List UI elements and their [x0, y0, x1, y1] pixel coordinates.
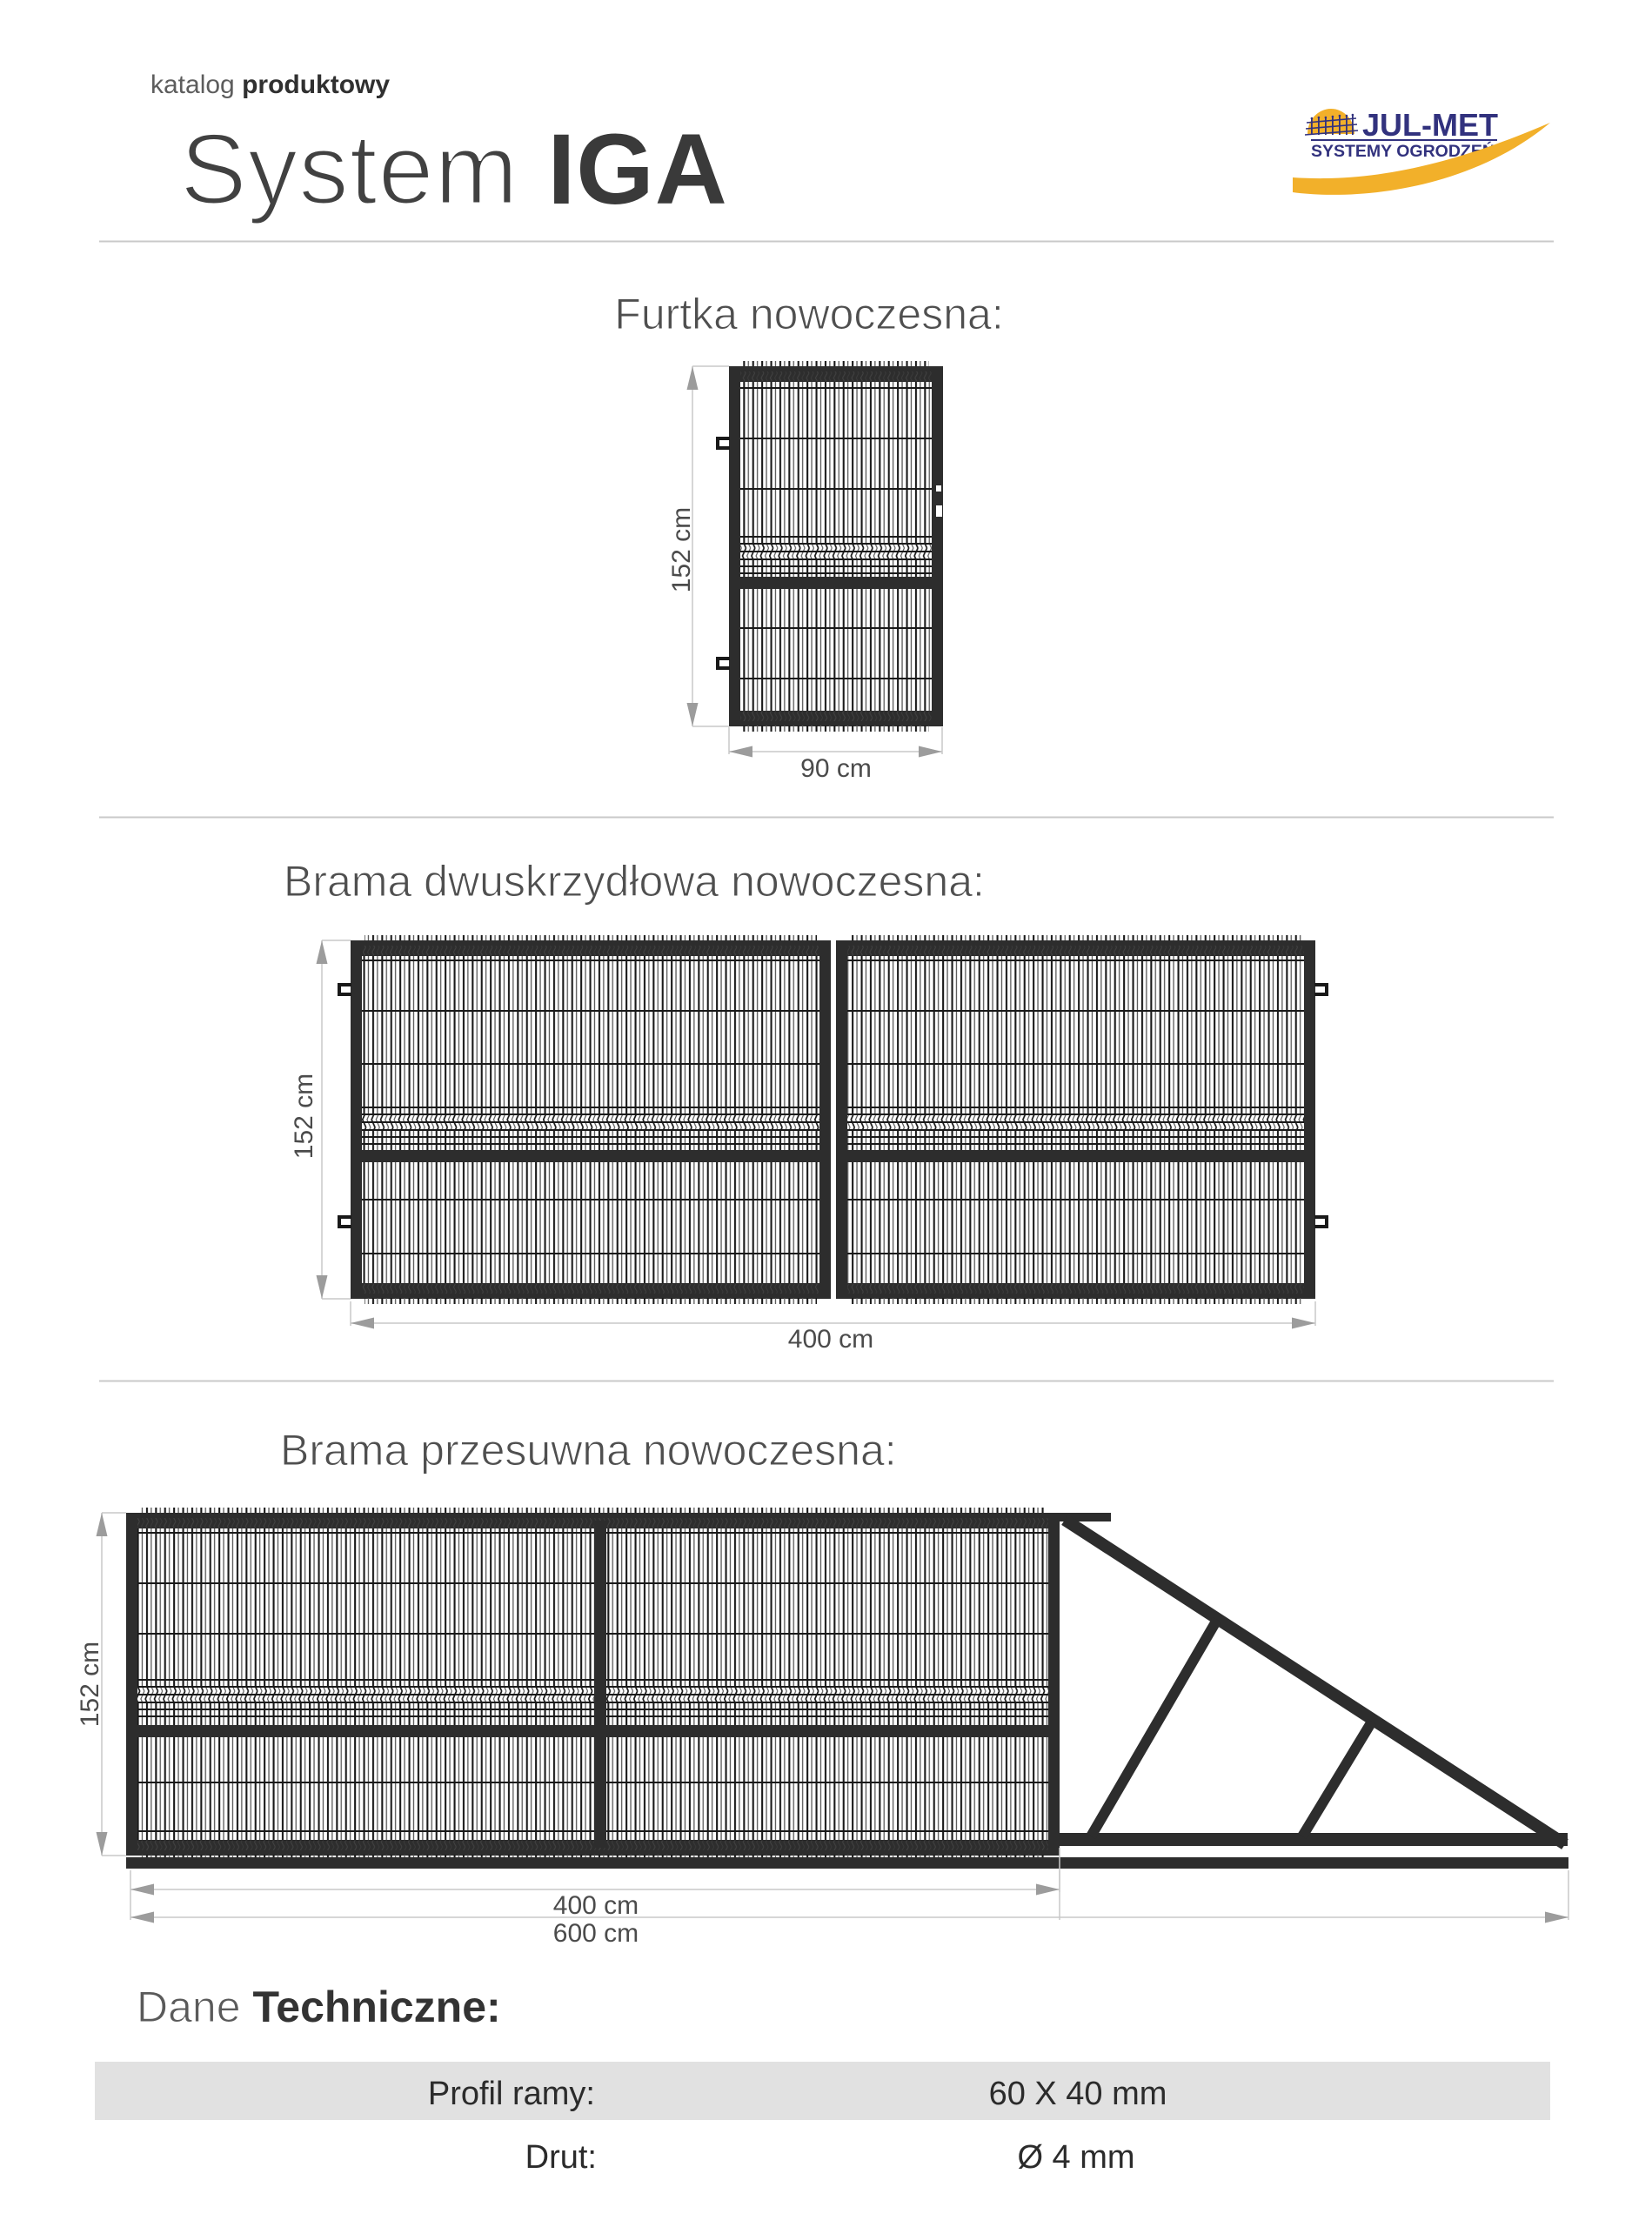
svg-text:152 cm: 152 cm [290, 1073, 318, 1159]
svg-text:400 cm: 400 cm [788, 1325, 873, 1354]
svg-text:JUL-MET: JUL-MET [1362, 107, 1498, 143]
svg-text:600 cm: 600 cm [553, 1919, 639, 1948]
svg-text:60 X 40 mm: 60 X 40 mm [989, 2076, 1167, 2112]
svg-text:90 cm: 90 cm [800, 754, 872, 783]
svg-text:katalog produktowy: katalog produktowy [150, 70, 390, 99]
svg-text:Drut:: Drut: [525, 2139, 597, 2176]
svg-text:Brama dwuskrzydłowa nowoczesna: Brama dwuskrzydłowa nowoczesna: [284, 857, 985, 906]
svg-text:Furtka nowoczesna:: Furtka nowoczesna: [614, 290, 1003, 338]
svg-text:152 cm: 152 cm [76, 1642, 104, 1727]
svg-text:System IGA: System IGA [180, 114, 728, 225]
svg-text:400 cm: 400 cm [553, 1891, 639, 1920]
svg-text:Profil ramy:: Profil ramy: [428, 2076, 595, 2112]
svg-text:152 cm: 152 cm [667, 507, 696, 592]
svg-text:Brama przesuwna nowoczesna:: Brama przesuwna nowoczesna: [280, 1426, 897, 1475]
svg-text:Ø 4 mm: Ø 4 mm [1017, 2139, 1134, 2176]
svg-text:Dane Techniczne:: Dane Techniczne: [137, 1983, 501, 2031]
